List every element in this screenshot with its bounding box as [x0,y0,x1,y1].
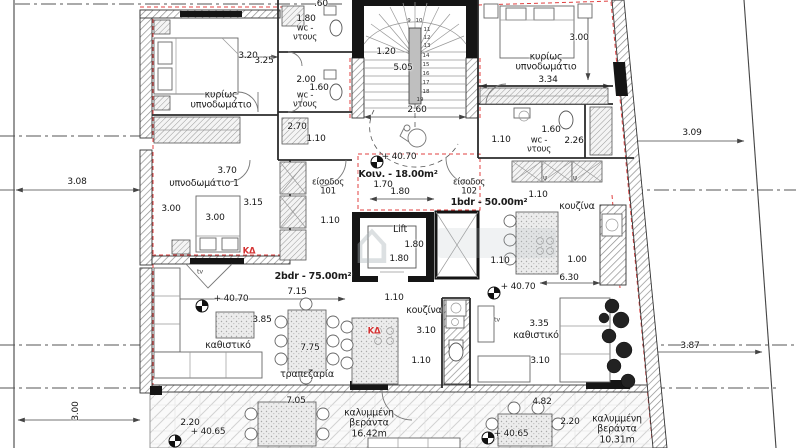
chair [327,335,339,347]
chair [275,316,287,328]
chair [275,353,287,365]
wall [140,150,152,265]
furniture [222,238,238,250]
wall [152,385,648,392]
door-arc [288,52,302,66]
wall [140,268,152,393]
closet [154,96,170,110]
stair-winder-tread [371,24,415,56]
chair [275,335,287,347]
chair [327,316,339,328]
stair-winder-tread [415,36,464,56]
floor-plan-canvas: ⌂ κυρίως υπνοδωμάτιοwc - ντουςwc - ντους… [0,0,796,448]
plant [616,342,632,358]
chair [300,372,312,384]
plant [613,312,629,328]
level-benchmark-icon [371,162,377,168]
plot-boundary-line [744,0,776,448]
table [288,310,326,372]
stair-spine [409,28,421,104]
wall-black [352,0,364,58]
plant [621,374,635,388]
wall-black [466,0,478,58]
wall-black [150,386,162,395]
door-arc [288,98,302,112]
level-benchmark-icon [488,293,494,299]
level-benchmark-icon [202,300,208,306]
furniture [446,300,466,316]
closet [282,118,308,144]
toilet [559,111,573,129]
level-benchmark-icon [494,287,500,293]
chair [245,408,257,420]
wall [352,58,364,118]
chair [504,234,516,246]
level-benchmark-icon [377,156,383,162]
wall [466,58,478,118]
wheelchair-icon [404,125,410,131]
stair-winder-tread [366,36,415,56]
toilet [449,343,463,361]
closet [590,107,612,155]
wall-black [352,212,434,218]
furniture [324,70,336,79]
furniture [478,356,530,382]
chair [341,339,353,351]
door-arc [446,158,472,184]
chair [317,428,329,440]
furniture [602,214,622,236]
chair [341,321,353,333]
chair [317,408,329,420]
closet [280,230,306,260]
plant [599,313,609,323]
toilet [330,20,342,36]
wall-black [190,258,244,264]
veranda-steps [368,438,460,448]
door-arc [228,160,250,182]
french-window [186,264,232,288]
chair [245,428,257,440]
furniture [158,42,172,64]
closet [172,240,190,254]
wall-black [426,212,434,282]
furniture [154,352,262,378]
door-arc [320,160,346,186]
stair-walk-line [370,110,458,167]
table [216,312,254,338]
furniture [478,306,494,342]
wall-black [352,212,360,282]
chair [504,253,516,265]
chair [341,357,353,369]
closet [154,20,170,34]
plant [605,299,619,313]
plant [602,329,616,343]
furniture [560,298,610,382]
floorplan-linework [0,0,796,448]
level-benchmark-icon [196,306,202,312]
toilet [330,84,342,100]
furniture [506,8,526,20]
furniture [534,8,554,20]
chair [300,298,312,310]
chair [504,215,516,227]
table [258,402,316,446]
chair [508,402,520,414]
chair [552,418,564,430]
lift-cab [368,226,416,268]
wheelchair-icon [408,129,426,147]
furniture [578,4,592,18]
furniture [200,238,216,250]
stair-winder-tread [415,24,459,56]
table [498,414,552,446]
furniture [324,6,336,15]
furniture [484,4,498,18]
wall-black [180,11,242,17]
door-arc [238,92,258,112]
plant [607,359,621,373]
chair [327,353,339,365]
chair [532,402,544,414]
chair [486,418,498,430]
furniture [158,68,172,90]
furniture [154,268,180,352]
wall [140,10,152,138]
furniture [446,316,464,328]
closet [282,6,304,26]
